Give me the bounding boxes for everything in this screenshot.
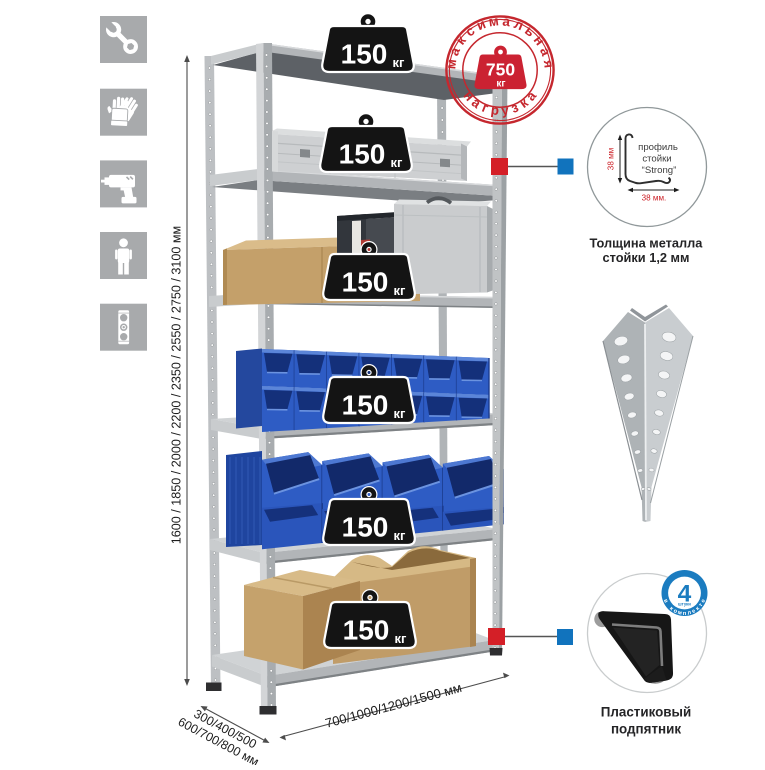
svg-text:штуки: штуки	[678, 601, 691, 606]
svg-text:стойки: стойки	[642, 154, 671, 165]
svg-text:Пластиковый: Пластиковый	[601, 705, 691, 720]
svg-text:“Strong”: “Strong”	[642, 165, 677, 176]
svg-text:750: 750	[486, 60, 515, 80]
svg-text:38 мм.: 38 мм.	[642, 194, 667, 203]
svg-text:стойки 1,2 мм: стойки 1,2 мм	[602, 250, 689, 265]
svg-text:подпятник: подпятник	[611, 722, 681, 737]
svg-text:кг: кг	[496, 79, 505, 90]
svg-text:Толщина металла: Толщина металла	[590, 236, 704, 251]
svg-text:1600 / 1850 / 2000 / 2200 / 23: 1600 / 1850 / 2000 / 2200 / 2350 / 2550 …	[170, 226, 184, 544]
svg-text:м: м	[443, 58, 459, 70]
svg-text:м: м	[488, 13, 500, 29]
svg-text:профиль: профиль	[638, 142, 678, 153]
svg-text:38 мм: 38 мм	[607, 148, 616, 170]
